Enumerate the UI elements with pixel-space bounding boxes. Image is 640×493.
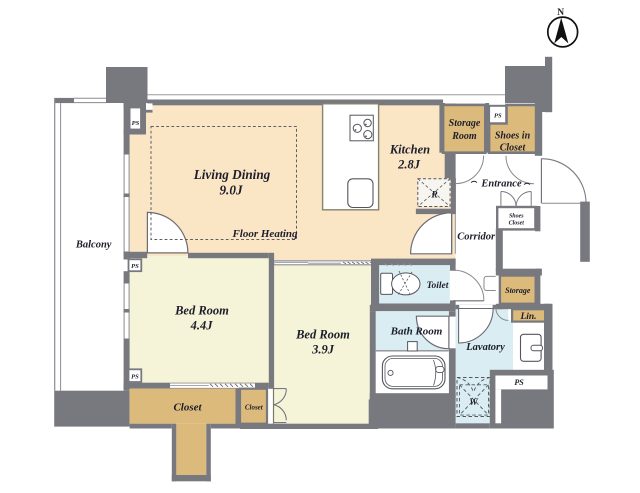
svg-text:Closet: Closet: [509, 221, 525, 227]
svg-text:Bed Room: Bed Room: [295, 328, 350, 342]
svg-text:Storage: Storage: [505, 286, 531, 295]
svg-text:N: N: [557, 8, 564, 18]
svg-text:Shoes in: Shoes in: [495, 131, 531, 142]
svg-text:Kitchen: Kitchen: [389, 143, 430, 157]
svg-text:Floor Heating: Floor Heating: [231, 228, 298, 240]
svg-text:PS: PS: [494, 113, 502, 120]
svg-text:4.4J: 4.4J: [190, 319, 214, 333]
svg-text:W: W: [469, 398, 478, 408]
svg-text:Lin.: Lin.: [519, 312, 536, 322]
svg-text:PS: PS: [132, 120, 140, 127]
svg-text:Toilet: Toilet: [427, 281, 449, 291]
svg-text:R: R: [430, 191, 437, 201]
svg-text:Bed Room: Bed Room: [174, 304, 229, 318]
svg-text:PS: PS: [514, 378, 524, 387]
svg-text:Balcony: Balcony: [75, 240, 112, 251]
svg-text:3.9J: 3.9J: [311, 343, 335, 357]
svg-text:Closet: Closet: [500, 143, 527, 154]
svg-text:Bath Room: Bath Room: [390, 326, 443, 338]
svg-text:Living Dining: Living Dining: [193, 167, 271, 182]
svg-text:Closet: Closet: [245, 404, 264, 412]
svg-text:Storage: Storage: [449, 118, 481, 129]
svg-text:Closet: Closet: [173, 402, 202, 414]
svg-text:Lavatory: Lavatory: [465, 342, 505, 353]
svg-text:Room: Room: [451, 131, 477, 142]
svg-text:Shoes: Shoes: [509, 214, 524, 220]
svg-text:9.0J: 9.0J: [219, 183, 242, 198]
svg-text:PS: PS: [131, 374, 139, 381]
svg-text:Corridor: Corridor: [457, 232, 496, 243]
svg-text:2.8J: 2.8J: [397, 158, 421, 172]
svg-text:Entrance: Entrance: [480, 179, 522, 190]
svg-text:PS: PS: [131, 263, 139, 270]
